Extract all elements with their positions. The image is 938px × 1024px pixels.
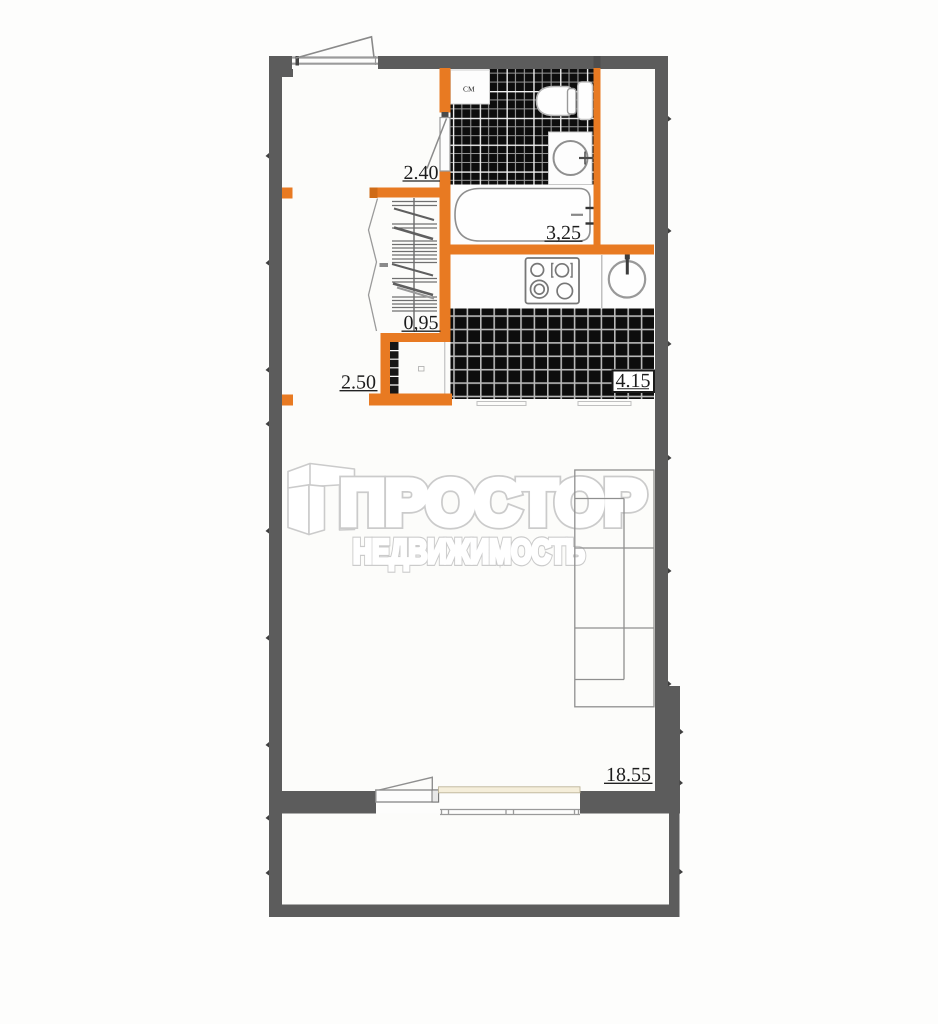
svg-text:НЕДВИЖИМОСТЬ: НЕДВИЖИМОСТЬ xyxy=(353,533,585,571)
svg-text:ПРОСТОР: ПРОСТОР xyxy=(340,468,646,538)
svg-text:СМ: СМ xyxy=(463,85,475,94)
